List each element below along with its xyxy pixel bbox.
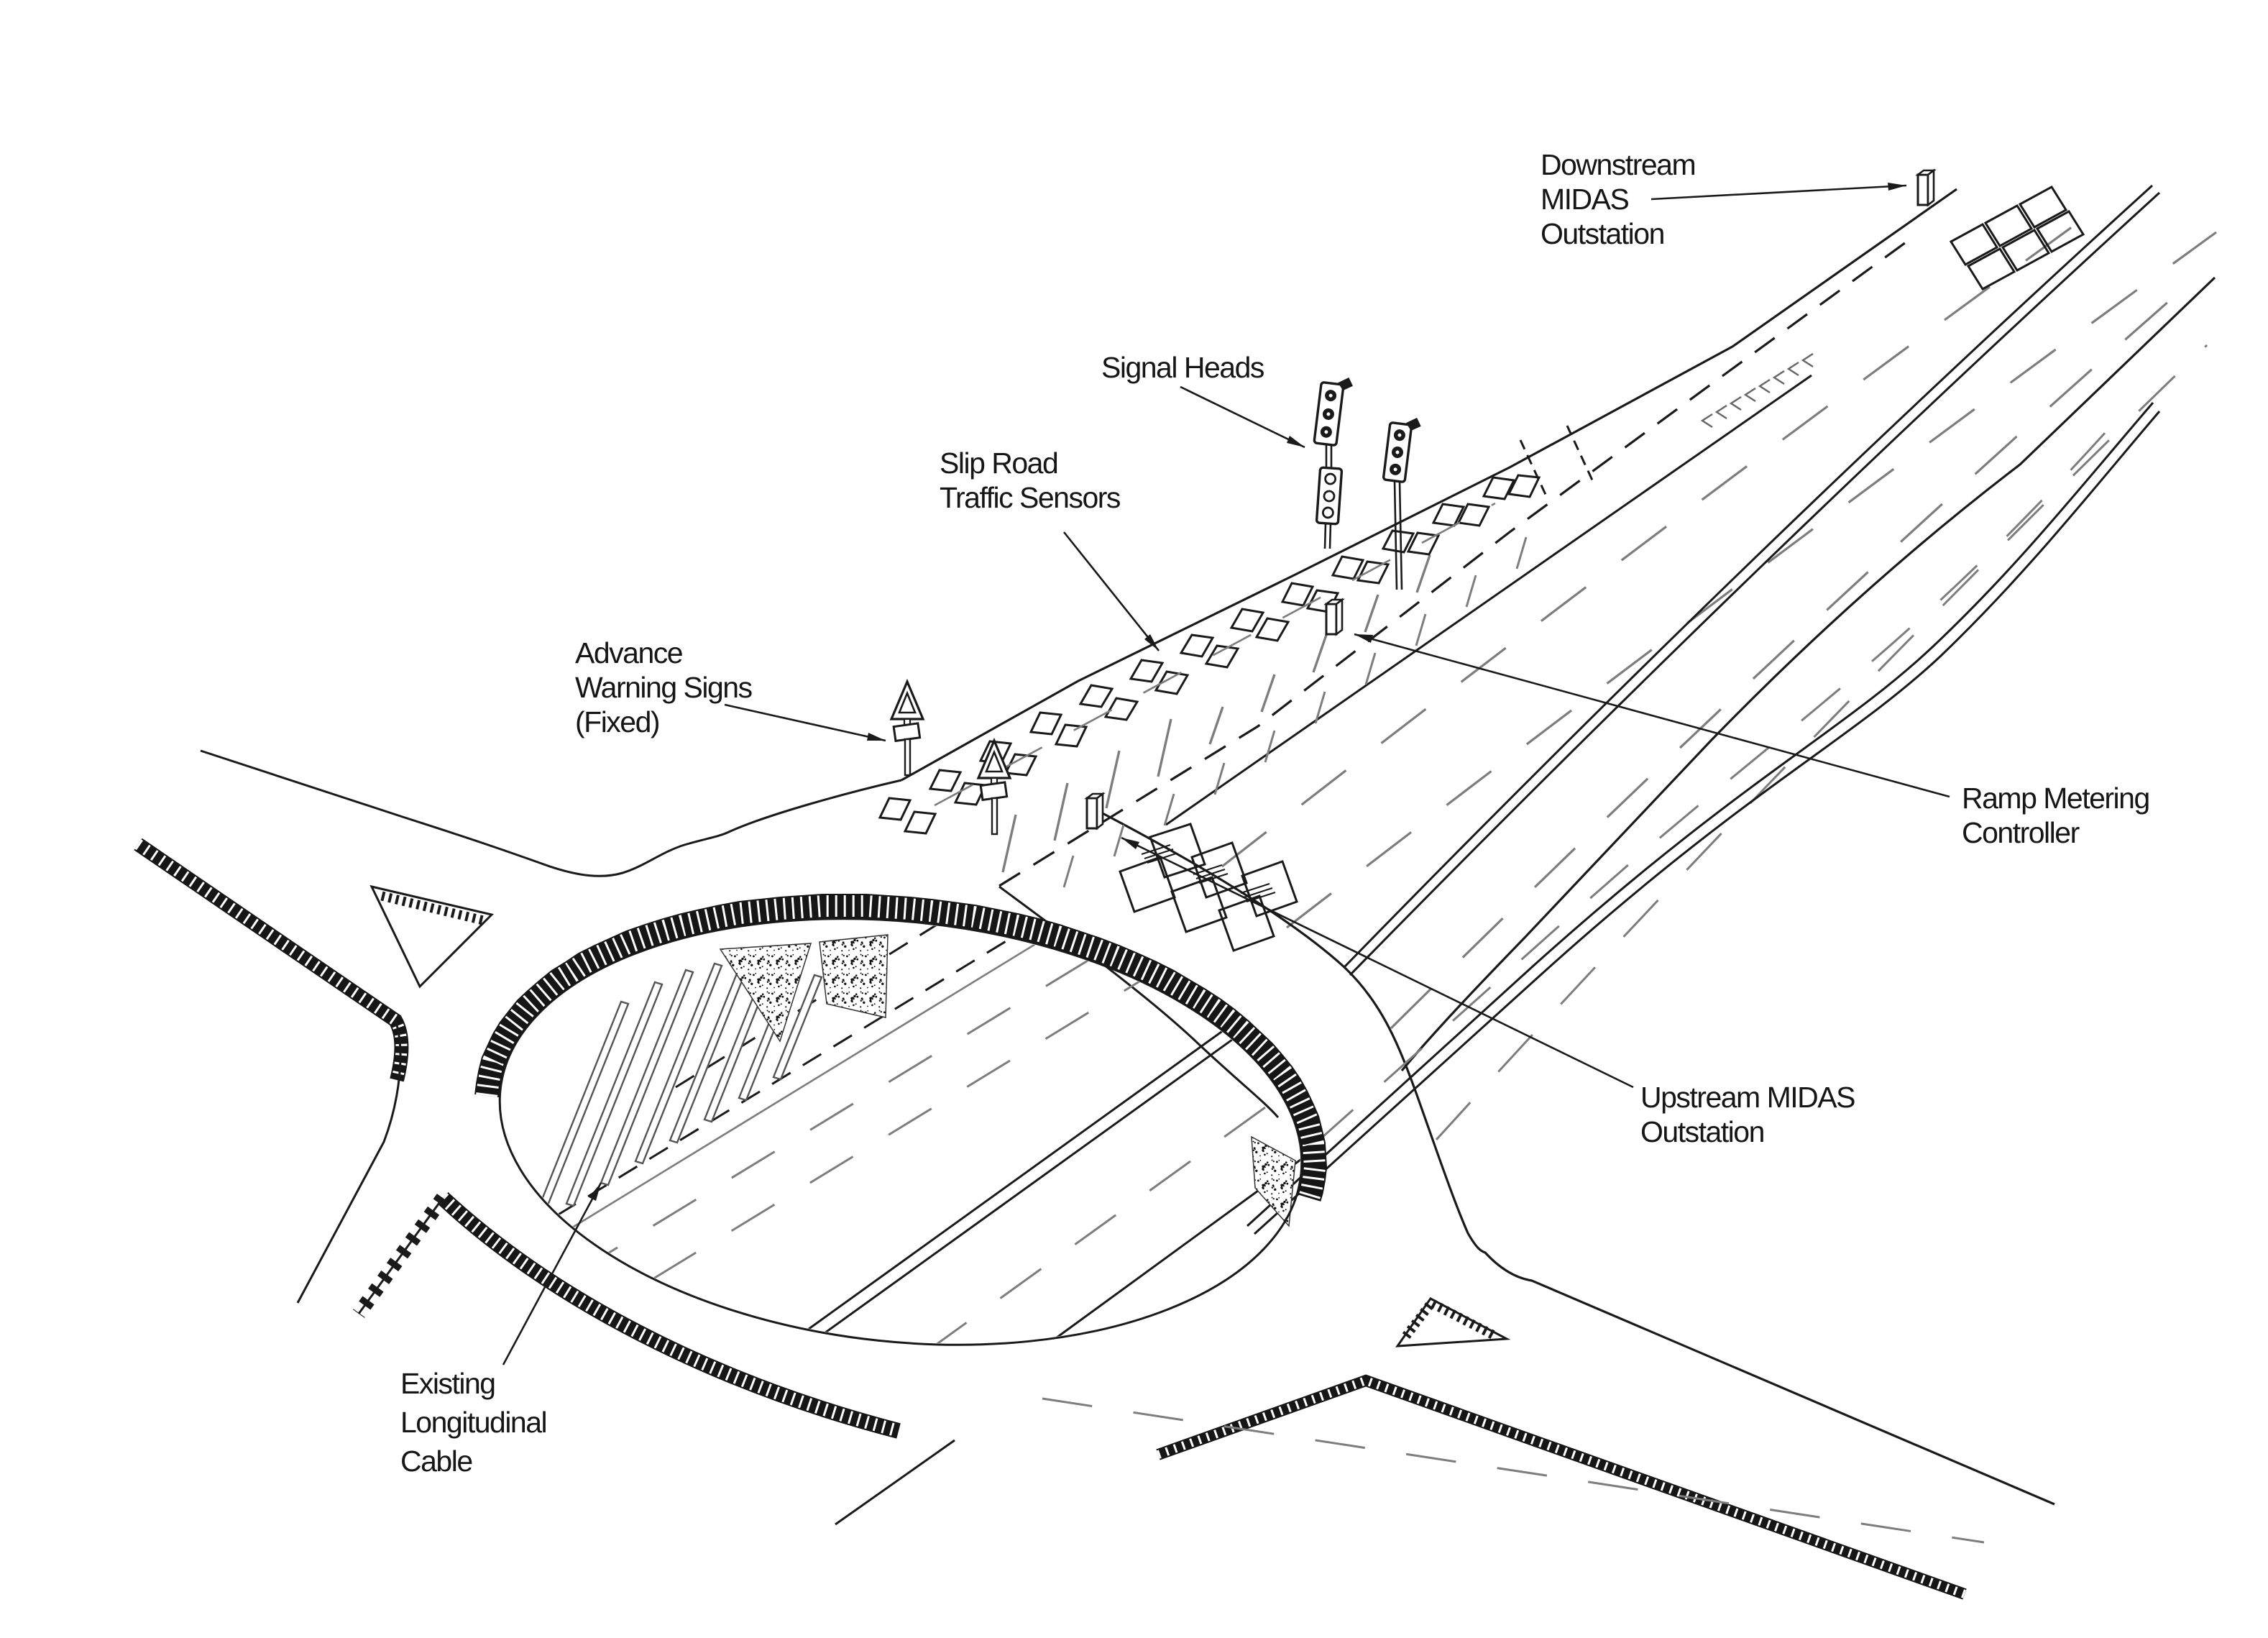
svg-text:Warning Signs: Warning Signs	[575, 671, 753, 704]
svg-text:Controller: Controller	[1962, 816, 2080, 849]
svg-text:Outstation: Outstation	[1640, 1115, 1764, 1148]
svg-text:Downstream: Downstream	[1541, 148, 1695, 181]
svg-text:Ramp Metering: Ramp Metering	[1962, 782, 2149, 815]
svg-text:Longitudinal: Longitudinal	[400, 1406, 546, 1439]
svg-text:MIDAS: MIDAS	[1541, 183, 1629, 216]
svg-text:Slip Road: Slip Road	[940, 447, 1057, 480]
svg-text:Upstream MIDAS: Upstream MIDAS	[1640, 1081, 1855, 1114]
svg-text:Traffic Sensors: Traffic Sensors	[940, 481, 1121, 514]
svg-text:Advance: Advance	[575, 636, 682, 669]
svg-text:Cable: Cable	[400, 1445, 472, 1478]
svg-text:Outstation: Outstation	[1541, 217, 1664, 250]
svg-text:Existing: Existing	[400, 1367, 495, 1400]
svg-text:Signal Heads: Signal Heads	[1101, 351, 1264, 384]
svg-text:(Fixed): (Fixed)	[575, 705, 659, 738]
